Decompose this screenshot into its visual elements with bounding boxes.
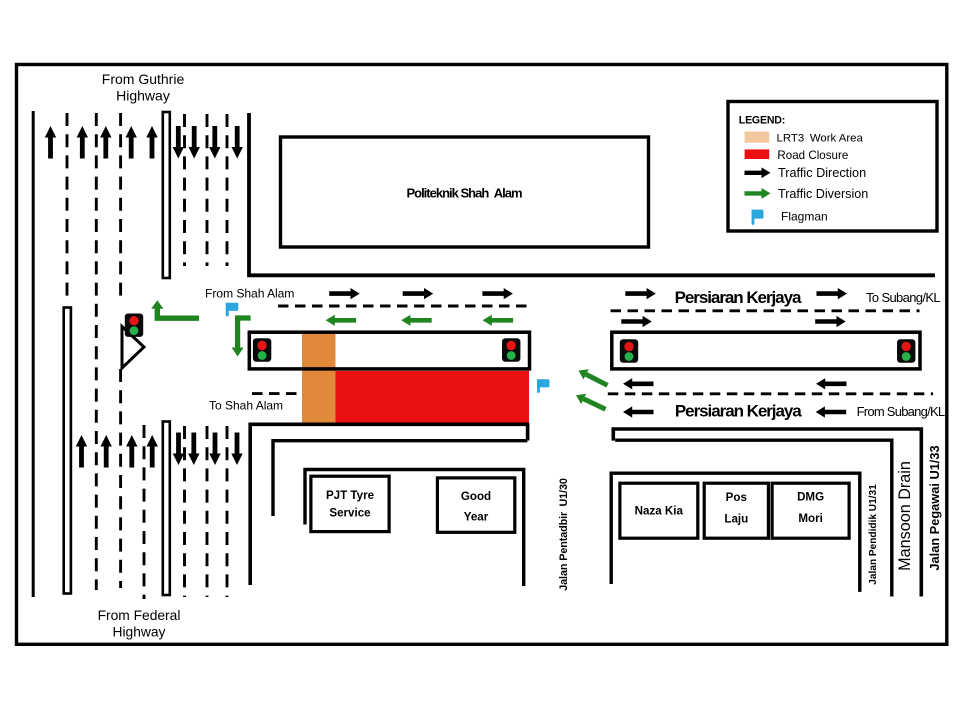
svg-text:Naza Kia: Naza Kia: [635, 505, 684, 518]
svg-text:Laju: Laju: [724, 513, 748, 526]
svg-text:LEGEND:: LEGEND:: [739, 115, 785, 127]
svg-text:To Subang/KL: To Subang/KL: [866, 290, 940, 305]
svg-text:LRT3 Work Area: LRT3 Work Area: [777, 133, 864, 145]
svg-text:From Federal: From Federal: [98, 608, 181, 623]
svg-text:Road Closure: Road Closure: [777, 149, 848, 162]
svg-text:Jalan Pegawai U1/33: Jalan Pegawai U1/33: [927, 445, 942, 570]
svg-text:Pos: Pos: [726, 491, 747, 504]
svg-text:From Guthrie: From Guthrie: [102, 71, 185, 87]
svg-text:Persiaran Kerjaya: Persiaran Kerjaya: [675, 288, 802, 307]
svg-text:From Shah Alam: From Shah Alam: [205, 287, 294, 301]
svg-text:Highway: Highway: [116, 88, 170, 104]
svg-text:Jalan Pentadbir U1/30: Jalan Pentadbir U1/30: [558, 478, 570, 591]
svg-text:Mori: Mori: [798, 512, 822, 525]
svg-text:Service: Service: [329, 507, 371, 520]
svg-text:To Shah Alam: To Shah Alam: [209, 399, 283, 413]
svg-text:Flagman: Flagman: [781, 210, 828, 224]
svg-text:Highway: Highway: [113, 625, 166, 640]
svg-text:Traffic Direction: Traffic Direction: [778, 166, 866, 180]
svg-text:Jalan Pendidik U1/31: Jalan Pendidik U1/31: [868, 484, 879, 585]
svg-text:Good: Good: [461, 490, 491, 503]
svg-text:DMG: DMG: [797, 491, 824, 504]
svg-text:Traffic Diversion: Traffic Diversion: [778, 187, 868, 201]
svg-text:PJT Tyre: PJT Tyre: [326, 489, 375, 502]
svg-text:From Subang/KL: From Subang/KL: [857, 404, 945, 419]
svg-text:Persiaran Kerjaya: Persiaran Kerjaya: [675, 402, 802, 421]
svg-text:Politeknik Shah Alam: Politeknik Shah Alam: [406, 186, 522, 201]
svg-text:Year: Year: [464, 511, 489, 524]
svg-text:Mansoon Drain: Mansoon Drain: [896, 461, 914, 571]
